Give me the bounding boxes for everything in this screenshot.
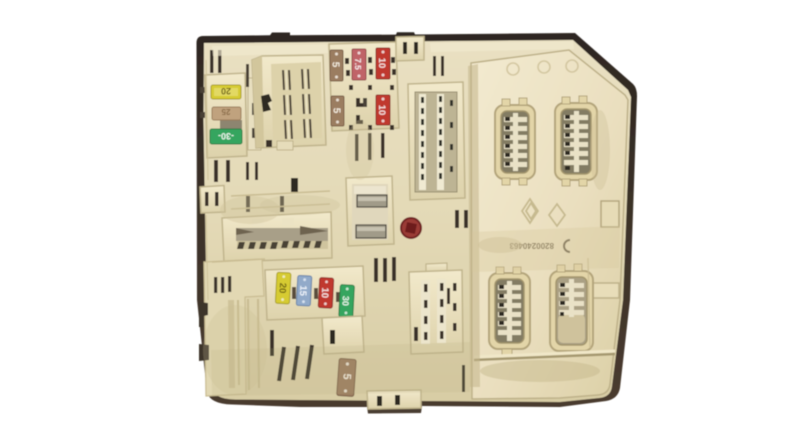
svg-text:5: 5 <box>331 108 342 114</box>
svg-text:20: 20 <box>276 282 288 293</box>
svg-text:15: 15 <box>297 285 309 297</box>
svg-text:10: 10 <box>319 287 331 298</box>
svg-text:10: 10 <box>376 105 387 116</box>
svg-text:5: 5 <box>330 62 341 68</box>
svg-text:20: 20 <box>221 86 231 96</box>
svg-text:-30-: -30- <box>218 131 234 141</box>
svg-text:7.5: 7.5 <box>353 58 363 70</box>
svg-text:10: 10 <box>376 58 387 69</box>
svg-text:30: 30 <box>340 296 351 307</box>
svg-text:25: 25 <box>221 107 230 116</box>
